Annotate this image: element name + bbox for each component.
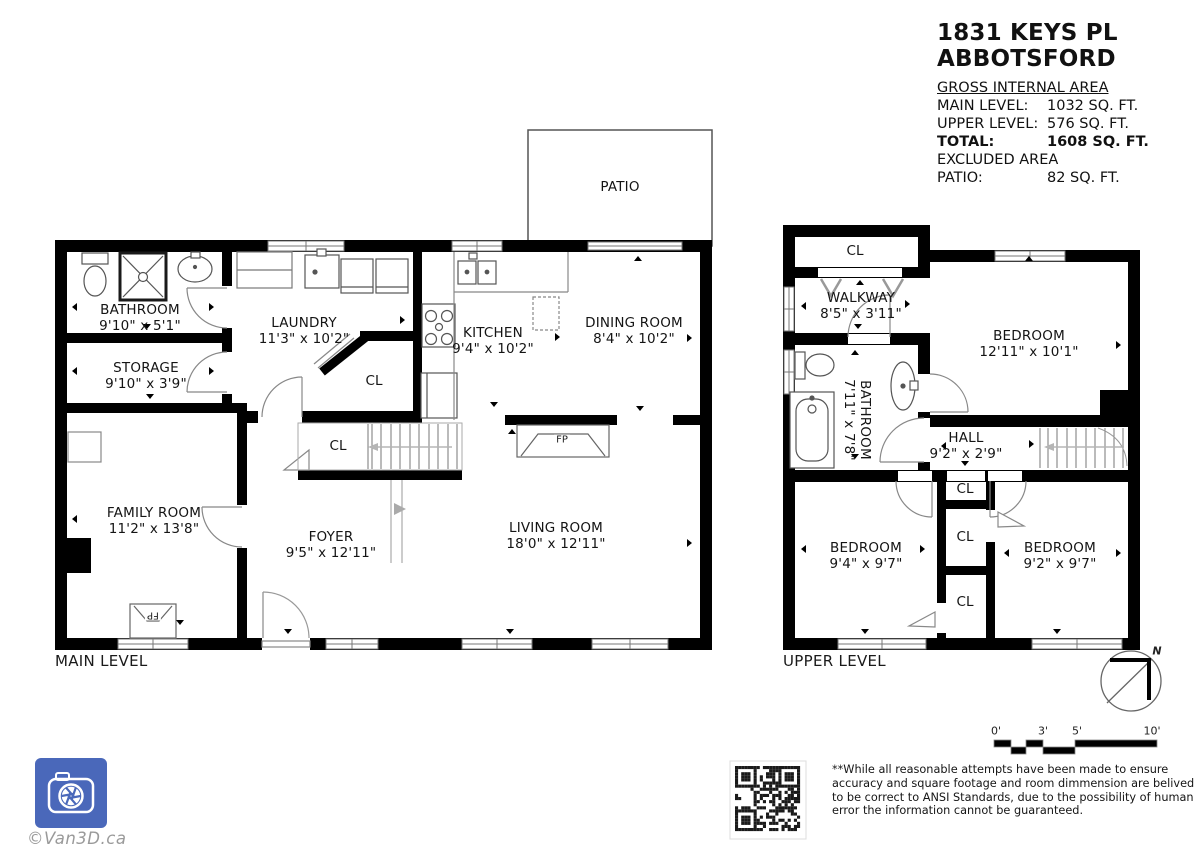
area-row: UPPER LEVEL: 576 SQ. FT. (937, 115, 1197, 133)
van3d-logo (35, 758, 107, 828)
north-label: N (1152, 645, 1161, 658)
upper-level-stairs (1040, 428, 1127, 468)
room-label-storage: STORAGE 9'10" x 3'9" (105, 360, 187, 392)
room-label-dining-room: DINING ROOM 8'4" x 10'2" (585, 315, 683, 347)
upper-level-title: UPPER LEVEL (783, 652, 886, 670)
scale-bar (994, 740, 1157, 754)
disclaimer-text: **While all reasonable attempts have bee… (832, 763, 1200, 818)
room-label-patio: PATIO (600, 179, 639, 195)
scale-label: 5' (1072, 725, 1082, 738)
header: 1831 KEYS PL ABBOTSFORD GROSS INTERNAL A… (937, 20, 1197, 187)
toilet-icon (795, 352, 805, 379)
closet-label: CL (847, 243, 864, 259)
closet-label: CL (366, 373, 383, 389)
area-row: MAIN LEVEL: 1032 SQ. FT. (937, 97, 1197, 115)
scale-label: 10' (1143, 725, 1160, 738)
compass-icon (1101, 651, 1161, 711)
entry-arrow (394, 503, 406, 515)
laundry-sink-icon (305, 255, 339, 288)
area-row-total: TOTAL: 1608 SQ. FT. (937, 133, 1197, 151)
main-level-title: MAIN LEVEL (55, 652, 148, 670)
floorplan-page: 1831 KEYS PL ABBOTSFORD GROSS INTERNAL A… (0, 0, 1200, 848)
dishwasher-icon (533, 297, 559, 330)
stairs-down-arrow (1044, 443, 1054, 451)
washer-icon (341, 259, 373, 293)
room-label-hall: HALL 9'2" x 2'9" (930, 430, 1003, 462)
address-line1: 1831 KEYS PL (937, 20, 1197, 46)
closet-label: CL (957, 594, 974, 610)
closet-label: CL (957, 529, 974, 545)
excluded-area-title: EXCLUDED AREA (937, 151, 1197, 169)
room-label-bathroom: BATHROOM 9'10" x 5'1" (99, 302, 181, 334)
room-label-bedroom-1: BEDROOM 12'11" x 10'1" (979, 328, 1078, 360)
fireplace-label: FP (554, 435, 570, 446)
toilet-icon (82, 253, 108, 264)
room-label-walkway: WALKWAY 8'5" x 3'11" (820, 290, 902, 322)
room-label-bathroom-upper: BATHROOM 7'11" x 7'8" (841, 379, 873, 461)
room-label-kitchen: KITCHEN 9'4" x 10'2" (452, 325, 534, 357)
room-label-bedroom-2: BEDROOM 9'4" x 9'7" (830, 540, 903, 572)
stove-icon (422, 304, 455, 347)
closet-label: CL (330, 438, 347, 454)
dryer-icon (376, 259, 408, 293)
excluded-area-row: PATIO: 82 SQ. FT. (937, 169, 1197, 187)
room-label-bedroom-3: BEDROOM 9'2" x 9'7" (1024, 540, 1097, 572)
stairs-up-arrow (368, 443, 378, 451)
fireplace-label: FP (145, 610, 161, 621)
room-label-living-room: LIVING ROOM 18'0" x 12'11" (506, 520, 605, 552)
scale-label: 3' (1038, 725, 1048, 738)
qr-code (730, 761, 806, 839)
room-label-laundry: LAUNDRY 11'3" x 10'2" (259, 315, 350, 347)
gross-area-title: GROSS INTERNAL AREA (937, 79, 1197, 97)
room-label-family-room: FAMILY ROOM 11'2" x 13'8" (107, 505, 201, 537)
logo-caption: ©Van3D.ca (27, 829, 126, 848)
room-label-foyer: FOYER 9'5" x 12'11" (286, 529, 377, 561)
address-line2: ABBOTSFORD (937, 46, 1197, 72)
scale-label: 0' (991, 725, 1001, 738)
closet-label: CL (957, 481, 974, 497)
